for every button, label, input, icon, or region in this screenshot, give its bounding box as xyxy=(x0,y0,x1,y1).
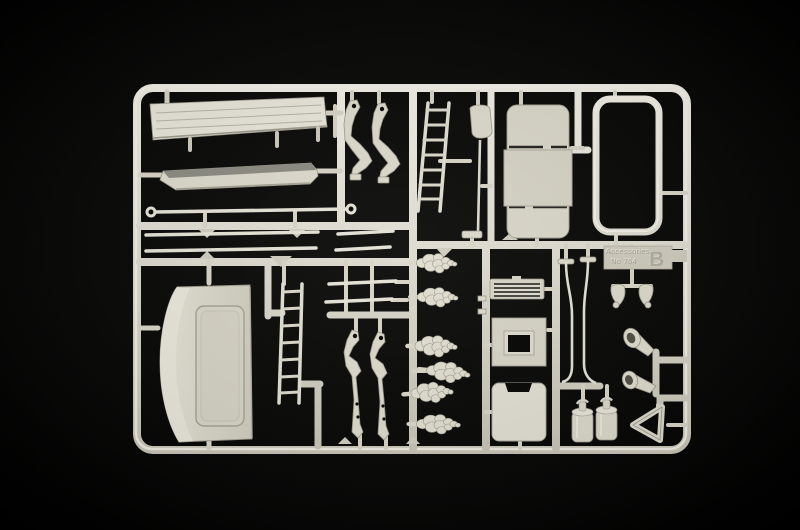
photo-stage: Accessories Accessories No 764 No 764 B … xyxy=(0,0,800,530)
vignette-overlay xyxy=(0,0,800,530)
sprue-photo: Accessories Accessories No 764 No 764 B … xyxy=(0,0,800,530)
